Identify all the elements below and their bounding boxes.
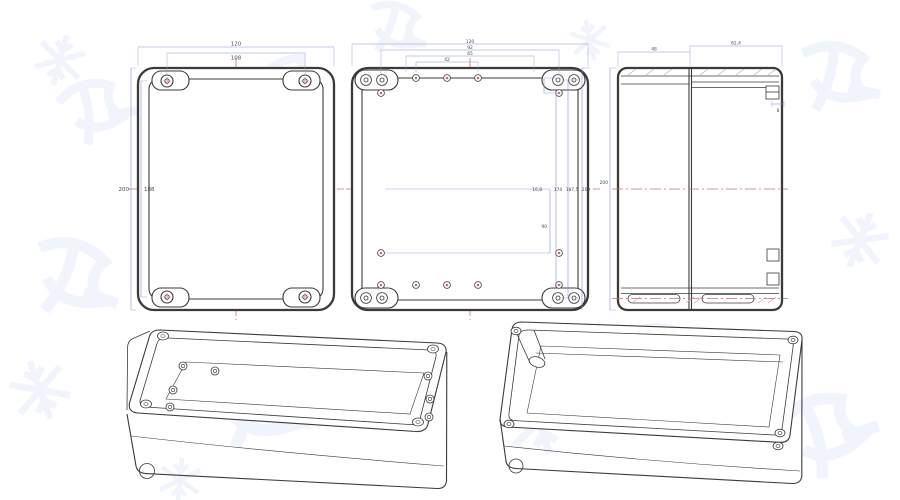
side-view: 48 62,4 200 8 — [600, 41, 788, 311]
dim-label-front-height-inner: 188 — [144, 187, 155, 193]
dim-label-front-width-inner: 108 — [231, 56, 242, 62]
dim-label-base-height: 200 — [582, 187, 591, 193]
front-view: 120 108 200 188 — [119, 42, 345, 321]
front-outer-body — [138, 68, 334, 310]
dim-label-base-width: 120 — [466, 39, 475, 45]
dim-label-base-screw-span: 187,5 — [566, 187, 579, 193]
dim-label-base-hole-span: 42 — [444, 57, 450, 63]
dim-label-base-lower-span: 90 — [541, 224, 547, 230]
dim-label-side-base-depth: 62,4 — [731, 41, 741, 47]
dim-label-front-width-outer: 120 — [231, 42, 242, 48]
dim-label-side-height: 200 — [600, 180, 609, 186]
side-outer-body — [618, 68, 782, 310]
dim-label-front-height-outer: 200 — [119, 187, 130, 193]
dim-label-side-latch: 8 — [777, 108, 780, 114]
iso-lid-view — [500, 322, 802, 484]
dim-label-side-lid-depth: 48 — [651, 47, 657, 53]
dim-label-base-bolt-span: 92 — [467, 45, 473, 51]
base-view: 120 92 65 42 90 16,8 174 187,5 200 — [346, 39, 600, 320]
dim-label-base-row-gap: 16,8 — [532, 187, 542, 193]
dim-label-base-hole-rows: 174 — [554, 187, 563, 193]
cad-sheet: 120 108 200 188 — [0, 0, 900, 500]
iso-lid-rim-outer — [500, 322, 802, 442]
dim-label-base-slot-span: 65 — [467, 51, 473, 57]
drawing-canvas: 120 108 200 188 — [0, 0, 900, 500]
